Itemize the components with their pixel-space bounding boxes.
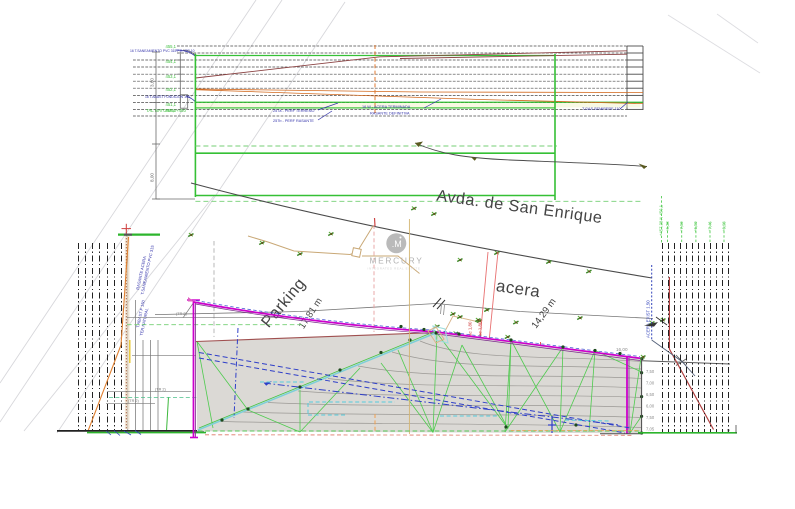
svg-text:+6,50: +6,50 [693,221,698,232]
svg-text:ac 1,80: ac 1,80 [468,321,473,336]
svg-text:8,00: 8,00 [150,173,155,182]
svg-text:RASANTE DEFINITIVA: RASANTE DEFINITIVA [370,112,410,116]
svg-text:D: D [727,429,730,433]
svg-text:+6,38: +6,38 [665,221,670,232]
svg-text:(TR 2): (TR 2) [128,399,139,403]
svg-text:+7,46: +7,46 [708,221,713,232]
svg-text:452,1: 452,1 [166,87,177,92]
svg-text:TAL NATURAL +450: TAL NATURAL +450 [146,108,186,113]
svg-text:454,1: 454,1 [166,59,177,64]
svg-text:7,00: 7,00 [646,381,655,386]
svg-text:6,50: 6,50 [646,392,655,397]
svg-text:INTEGRATED REAL ESTATE: INTEGRATED REAL ESTATE [368,267,421,271]
svg-text:7,50: 7,50 [646,415,655,420]
svg-text:451,1: 451,1 [166,102,177,107]
svg-text:6,00: 6,00 [646,404,655,409]
svg-text:T.GAS SEMIPERF 110: T.GAS SEMIPERF 110 [582,107,621,111]
svg-text:7,50: 7,50 [646,369,655,374]
svg-text:+6,98: +6,98 [722,221,727,232]
svg-text:MERCURY: MERCURY [369,256,423,266]
svg-text:7,05: 7,05 [646,427,655,432]
svg-text:257b - PERF RASANTE: 257b - PERF RASANTE [273,119,314,123]
svg-text:+7,50: +7,50 [679,221,684,232]
svg-text:.M: .M [392,239,402,249]
svg-text:ACERA EXIST 1,50: ACERA EXIST 1,50 [646,300,651,338]
svg-text:+457,38 N 456,1: +457,38 N 456,1 [659,204,664,236]
svg-text:16 W - ACERA TERMINADA: 16 W - ACERA TERMINADA [362,105,411,109]
svg-text:453,1: 453,1 [166,74,177,79]
svg-text:257a - PERF TERRENO: 257a - PERF TERRENO [273,109,315,113]
svg-text:(TR 2): (TR 2) [155,387,166,391]
svg-text:ac 1,80: ac 1,80 [478,321,483,336]
svg-text:16 T.ABAST FUNDICION 150: 16 T.ABAST FUNDICION 150 [145,95,190,99]
svg-text:3,60: 3,60 [150,78,155,87]
svg-text:16,00: 16,00 [616,347,628,352]
svg-text:(TR 2): (TR 2) [176,312,187,316]
